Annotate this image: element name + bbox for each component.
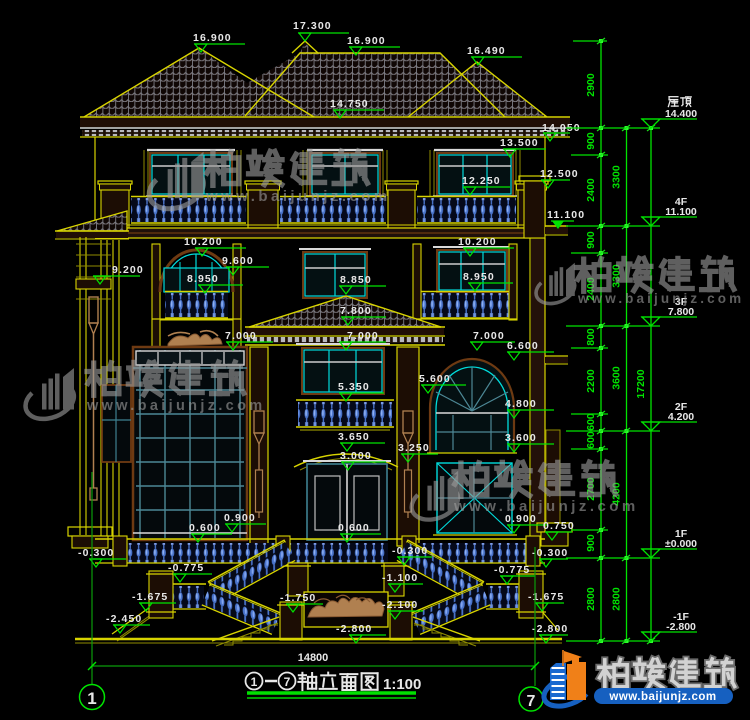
svg-text:900: 900 bbox=[585, 534, 597, 552]
svg-text:3.650: 3.650 bbox=[338, 431, 370, 443]
svg-text:-1.750: -1.750 bbox=[280, 592, 316, 604]
svg-text:1:100: 1:100 bbox=[383, 676, 421, 693]
svg-text:0.750: 0.750 bbox=[543, 520, 575, 532]
svg-text:-1.100: -1.100 bbox=[382, 572, 418, 584]
svg-text:7.000: 7.000 bbox=[225, 330, 257, 342]
svg-text:3300: 3300 bbox=[611, 165, 623, 189]
svg-text:-1.675: -1.675 bbox=[528, 591, 564, 603]
svg-text:600: 600 bbox=[585, 431, 597, 449]
svg-text:16.490: 16.490 bbox=[467, 45, 506, 57]
svg-text:www.baijunjz.com: www.baijunjz.com bbox=[577, 291, 744, 306]
svg-text:13.500: 13.500 bbox=[500, 137, 539, 149]
svg-text:www.baijunjz.com: www.baijunjz.com bbox=[205, 188, 391, 205]
svg-text:8.850: 8.850 bbox=[340, 274, 372, 286]
svg-text:2400: 2400 bbox=[585, 178, 597, 202]
svg-text:14.750: 14.750 bbox=[330, 98, 369, 110]
svg-text:600: 600 bbox=[585, 413, 597, 431]
svg-text:1: 1 bbox=[251, 675, 258, 689]
svg-text:11.100: 11.100 bbox=[547, 209, 585, 221]
svg-text:5.600: 5.600 bbox=[419, 373, 451, 385]
svg-text:www.baijunjz.com: www.baijunjz.com bbox=[86, 398, 266, 414]
svg-text:-0.775: -0.775 bbox=[494, 564, 530, 576]
svg-text:9.200: 9.200 bbox=[112, 264, 144, 276]
svg-text:16.900: 16.900 bbox=[347, 35, 386, 47]
svg-text:-2.450: -2.450 bbox=[106, 613, 142, 625]
svg-text:12.250: 12.250 bbox=[462, 175, 501, 187]
svg-text:0.600: 0.600 bbox=[189, 522, 221, 534]
svg-text:3.000: 3.000 bbox=[340, 450, 372, 462]
svg-text:7.800: 7.800 bbox=[340, 305, 372, 317]
svg-text:7: 7 bbox=[527, 693, 536, 710]
svg-text:www.baijunjz.com: www.baijunjz.com bbox=[453, 498, 639, 515]
svg-text:3600: 3600 bbox=[611, 366, 623, 390]
svg-text:-0.775: -0.775 bbox=[168, 562, 204, 574]
svg-text:-0.300: -0.300 bbox=[392, 545, 428, 557]
svg-text:-0.300: -0.300 bbox=[532, 547, 568, 559]
svg-text:0.900: 0.900 bbox=[224, 512, 256, 524]
svg-text:800: 800 bbox=[585, 328, 597, 346]
svg-text:8.950: 8.950 bbox=[463, 271, 495, 283]
svg-text:-1.675: -1.675 bbox=[132, 591, 168, 603]
svg-text:7.000: 7.000 bbox=[347, 330, 379, 342]
svg-text:4.800: 4.800 bbox=[505, 398, 537, 410]
svg-text:17.300: 17.300 bbox=[293, 20, 332, 32]
svg-text:7.800: 7.800 bbox=[668, 306, 694, 318]
svg-text:10.200: 10.200 bbox=[184, 236, 223, 248]
svg-text:1: 1 bbox=[87, 689, 96, 708]
svg-text:2800: 2800 bbox=[585, 587, 597, 611]
svg-text:14.400: 14.400 bbox=[665, 108, 697, 120]
svg-text:16.900: 16.900 bbox=[193, 32, 232, 44]
svg-text:-0.300: -0.300 bbox=[78, 547, 114, 559]
svg-text:±0.000: ±0.000 bbox=[665, 538, 697, 550]
svg-text:900: 900 bbox=[585, 132, 597, 150]
svg-text:14800: 14800 bbox=[298, 652, 329, 664]
svg-text:4.200: 4.200 bbox=[668, 411, 694, 423]
svg-text:3.250: 3.250 bbox=[398, 442, 430, 454]
svg-text:6.600: 6.600 bbox=[507, 340, 539, 352]
svg-text:2900: 2900 bbox=[585, 73, 597, 97]
svg-text:2200: 2200 bbox=[585, 369, 597, 393]
svg-text:12.500: 12.500 bbox=[540, 168, 579, 180]
svg-text:-2.800: -2.800 bbox=[532, 623, 568, 635]
svg-text:9.600: 9.600 bbox=[222, 255, 254, 267]
svg-text:-2.800: -2.800 bbox=[336, 623, 372, 635]
svg-text:3.600: 3.600 bbox=[505, 432, 537, 444]
svg-text:-2.100: -2.100 bbox=[382, 599, 418, 611]
svg-text:-2.800: -2.800 bbox=[666, 621, 696, 633]
svg-text:7: 7 bbox=[284, 675, 291, 689]
svg-text:0.600: 0.600 bbox=[338, 522, 370, 534]
svg-text:900: 900 bbox=[585, 231, 597, 249]
svg-text:10.200: 10.200 bbox=[458, 236, 497, 248]
svg-text:8.950: 8.950 bbox=[187, 273, 219, 285]
svg-text:17200: 17200 bbox=[635, 369, 647, 398]
svg-text:5.350: 5.350 bbox=[338, 381, 370, 393]
svg-text:7.000: 7.000 bbox=[473, 330, 505, 342]
svg-text:2800: 2800 bbox=[611, 587, 623, 611]
svg-text:11.100: 11.100 bbox=[665, 206, 697, 218]
svg-text:www.baijunjz.com: www.baijunjz.com bbox=[608, 691, 716, 703]
